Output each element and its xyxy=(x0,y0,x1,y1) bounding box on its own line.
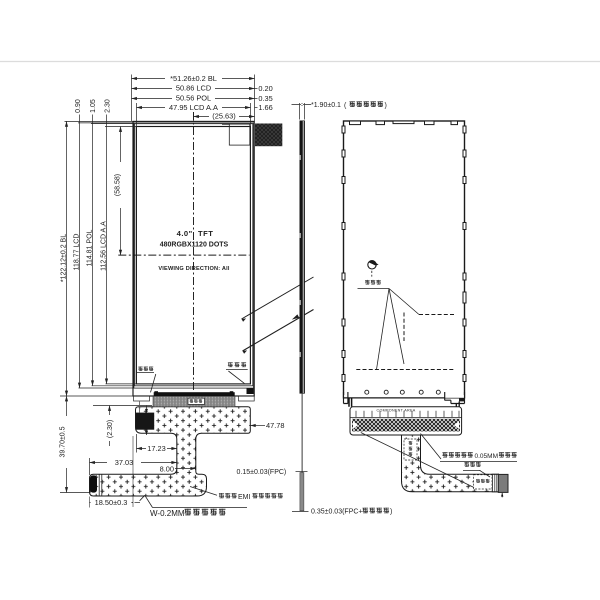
svg-text:0.20: 0.20 xyxy=(258,84,272,93)
svg-text:18.50±0.3: 18.50±0.3 xyxy=(95,498,128,507)
svg-text:(25.63): (25.63) xyxy=(212,112,235,121)
svg-text:8.00: 8.00 xyxy=(160,464,174,473)
svg-text:VIEWING DIRECTION: All: VIEWING DIRECTION: All xyxy=(158,266,230,272)
svg-text:0.05MM: 0.05MM xyxy=(475,453,498,460)
svg-text:1.05: 1.05 xyxy=(90,99,97,113)
svg-text:114.81 POL: 114.81 POL xyxy=(86,229,93,266)
svg-text:47.95 LCD A.A: 47.95 LCD A.A xyxy=(169,103,218,112)
svg-text:): ) xyxy=(390,509,392,516)
svg-text:0.35: 0.35 xyxy=(258,94,272,103)
svg-text:50.86 LCD: 50.86 LCD xyxy=(176,84,211,93)
svg-text:118.77 LCD: 118.77 LCD xyxy=(73,234,80,271)
svg-text:50.56 POL: 50.56 POL xyxy=(176,94,211,103)
svg-text:EMI: EMI xyxy=(238,494,251,501)
svg-text:): ) xyxy=(385,102,387,109)
svg-text:0.35±0.03(FPC+: 0.35±0.03(FPC+ xyxy=(311,509,363,516)
svg-text:*51.26±0.2 BL: *51.26±0.2 BL xyxy=(170,74,217,83)
svg-text:(2.30): (2.30) xyxy=(107,420,114,438)
svg-text:*1.90±0.1: *1.90±0.1 xyxy=(311,102,341,109)
svg-text:4.0" TFT: 4.0" TFT xyxy=(177,229,214,238)
svg-text:(58.58): (58.58) xyxy=(115,174,122,196)
svg-text:39.70±0.5: 39.70±0.5 xyxy=(60,426,67,457)
svg-text:W-0.2MM: W-0.2MM xyxy=(150,509,185,518)
svg-text:*122.12±0.2 BL: *122.12±0.2 BL xyxy=(60,234,67,282)
svg-text:2.30: 2.30 xyxy=(105,99,112,113)
svg-text:0.15±0.03(FPC): 0.15±0.03(FPC) xyxy=(237,469,287,476)
svg-text:17.23: 17.23 xyxy=(147,444,166,453)
svg-text:37.03: 37.03 xyxy=(115,458,134,467)
svg-text:112.56 LCD A.A: 112.56 LCD A.A xyxy=(100,221,107,271)
svg-text:47.78: 47.78 xyxy=(266,421,285,430)
svg-text:1.66: 1.66 xyxy=(258,103,272,112)
svg-text:480RGBX1120 DOTS: 480RGBX1120 DOTS xyxy=(160,242,229,249)
svg-text:0.90: 0.90 xyxy=(75,99,82,113)
